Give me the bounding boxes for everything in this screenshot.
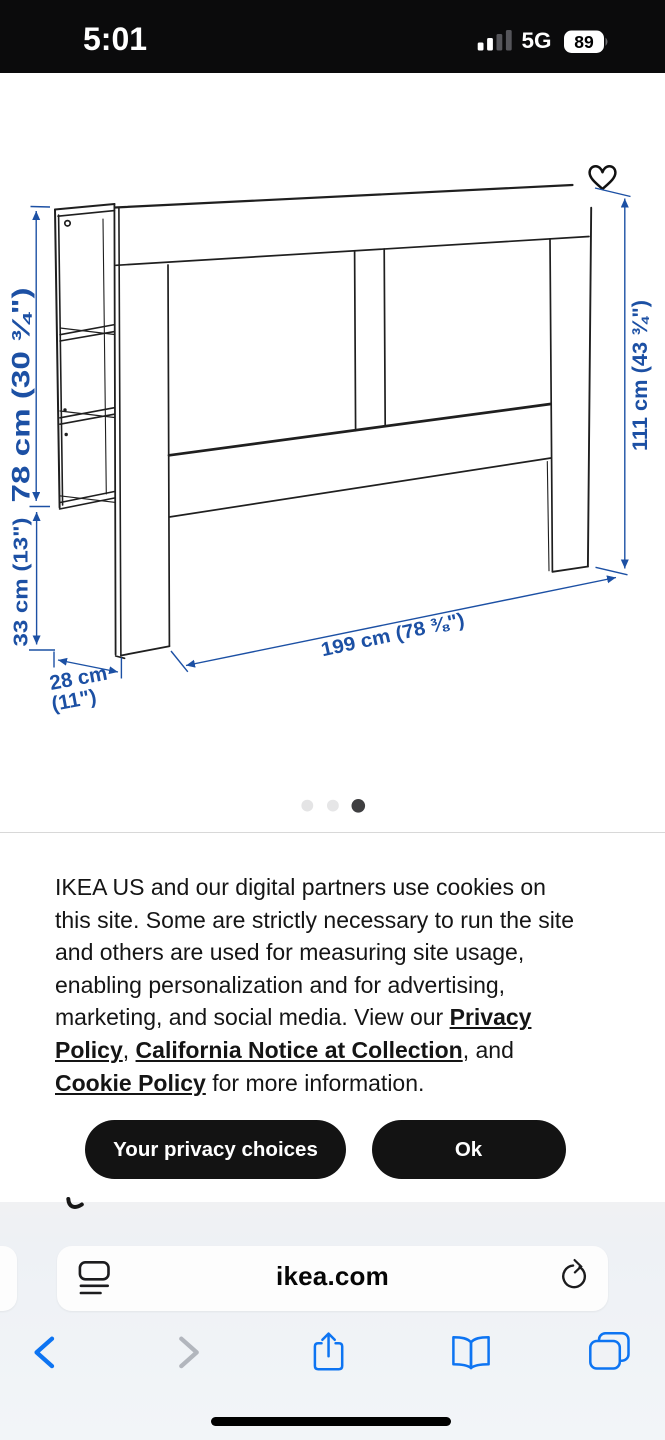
svg-text:89: 89 xyxy=(574,32,594,52)
svg-text:78 cm (30 ¾"): 78 cm (30 ¾") xyxy=(8,288,36,503)
svg-text:33 cm (13"): 33 cm (13") xyxy=(10,518,33,647)
svg-text:199 cm (78 ⅜"): 199 cm (78 ⅜") xyxy=(319,609,466,661)
svg-text:111 cm (43 ¾"): 111 cm (43 ¾") xyxy=(628,300,652,451)
svg-text:5G: 5G xyxy=(522,28,552,53)
